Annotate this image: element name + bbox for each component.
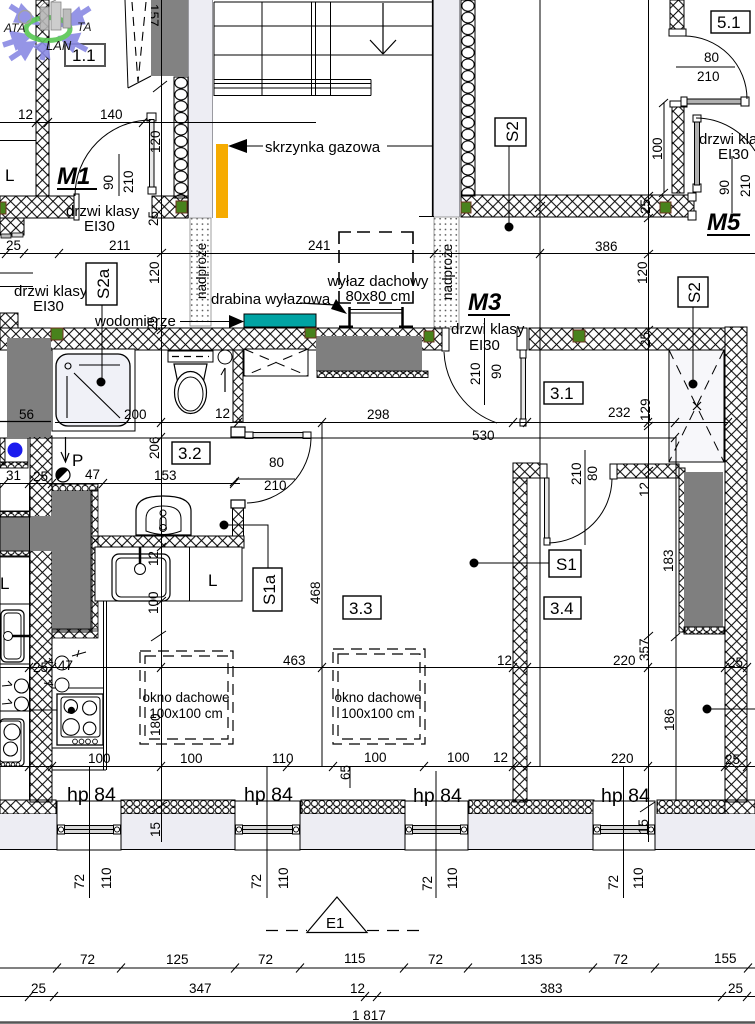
svg-text:135: 135	[520, 952, 543, 967]
svg-text:100x100 cm: 100x100 cm	[341, 706, 415, 721]
svg-text:L: L	[208, 571, 217, 590]
svg-text:206: 206	[147, 436, 162, 459]
svg-text:241: 241	[308, 238, 331, 253]
svg-text:12: 12	[493, 750, 508, 765]
svg-text:211: 211	[109, 238, 131, 253]
svg-text:3.1: 3.1	[550, 384, 574, 403]
svg-text:110: 110	[272, 751, 294, 766]
svg-text:155: 155	[714, 951, 737, 966]
svg-text:183: 183	[661, 549, 676, 572]
svg-text:210: 210	[468, 362, 483, 385]
svg-text:25: 25	[638, 199, 653, 214]
svg-text:125: 125	[166, 952, 189, 967]
svg-text:5.1: 5.1	[717, 13, 741, 32]
svg-text:47: 47	[58, 658, 73, 673]
svg-text:ATA: ATA	[3, 21, 26, 35]
svg-text:100: 100	[180, 751, 203, 766]
svg-text:25: 25	[728, 981, 743, 996]
svg-text:347: 347	[189, 981, 212, 996]
svg-text:220: 220	[613, 653, 636, 668]
svg-text:okno dachowe: okno dachowe	[334, 690, 421, 705]
svg-text:72: 72	[613, 952, 628, 967]
svg-text:25: 25	[146, 211, 161, 226]
svg-text:72: 72	[80, 952, 95, 967]
svg-text:M5: M5	[707, 209, 741, 236]
svg-text:1 817: 1 817	[352, 1008, 386, 1023]
svg-text:M3: M3	[468, 289, 502, 316]
svg-text:72: 72	[420, 876, 435, 891]
svg-text:100: 100	[88, 751, 111, 766]
svg-text:100: 100	[650, 137, 665, 160]
svg-text:25: 25	[145, 316, 160, 331]
svg-text:72: 72	[606, 875, 621, 890]
svg-text:80: 80	[704, 50, 719, 65]
svg-text:100: 100	[146, 591, 161, 614]
svg-text:3.3: 3.3	[349, 599, 373, 618]
svg-text:12: 12	[637, 482, 652, 497]
svg-text:65: 65	[338, 765, 353, 780]
svg-text:12: 12	[215, 406, 230, 421]
svg-text:120: 120	[147, 261, 162, 284]
svg-text:530: 530	[472, 428, 495, 443]
svg-text:drzwi klasy: drzwi klasy	[451, 321, 525, 338]
svg-text:140: 140	[100, 107, 123, 122]
svg-text:153: 153	[154, 468, 177, 483]
svg-text:nadproże: nadproże	[194, 243, 209, 299]
svg-text:80: 80	[269, 455, 284, 470]
svg-text:M1: M1	[57, 163, 90, 190]
svg-text:100: 100	[447, 750, 470, 765]
svg-text:hp 84: hp 84	[413, 785, 462, 807]
svg-text:72: 72	[72, 874, 87, 889]
svg-text:210: 210	[697, 69, 720, 84]
svg-text:120: 120	[635, 261, 650, 284]
svg-text:S2: S2	[503, 121, 522, 142]
svg-text:25: 25	[31, 981, 46, 996]
svg-text:72: 72	[428, 952, 443, 967]
svg-text:210: 210	[264, 478, 287, 493]
svg-text:200: 200	[124, 407, 147, 422]
svg-text:EI30: EI30	[469, 337, 500, 354]
svg-text:hp 84: hp 84	[67, 784, 116, 806]
svg-text:skrzynka gazowa: skrzynka gazowa	[265, 139, 381, 156]
svg-text:EI30: EI30	[718, 146, 749, 163]
svg-text:12: 12	[497, 653, 512, 668]
svg-text:S1: S1	[556, 555, 577, 574]
svg-text:186: 186	[662, 708, 677, 731]
svg-text:357: 357	[637, 638, 652, 661]
svg-text:E1: E1	[326, 915, 344, 932]
svg-text:386: 386	[595, 239, 618, 254]
svg-text:47: 47	[85, 467, 100, 482]
svg-text:80: 80	[585, 466, 600, 481]
svg-text:298: 298	[367, 407, 390, 422]
svg-text:drabina wyłazowa: drabina wyłazowa	[211, 291, 331, 308]
svg-text:LAN: LAN	[46, 38, 72, 53]
svg-text:hp 84: hp 84	[244, 784, 293, 806]
svg-text:3.2: 3.2	[178, 444, 202, 463]
svg-text:S2: S2	[685, 282, 704, 303]
svg-text:72: 72	[249, 874, 264, 889]
svg-text:25: 25	[725, 752, 740, 767]
svg-text:P: P	[72, 451, 83, 470]
svg-text:220: 220	[611, 751, 634, 766]
svg-text:wodomierze: wodomierze	[94, 313, 176, 330]
svg-text:210: 210	[121, 170, 136, 193]
svg-text:180: 180	[148, 713, 163, 736]
svg-text:120: 120	[148, 130, 163, 153]
svg-text:210: 210	[569, 462, 584, 485]
svg-text:90: 90	[489, 364, 504, 379]
svg-text:72: 72	[258, 952, 273, 967]
svg-text:25: 25	[638, 332, 653, 347]
svg-text:100: 100	[364, 750, 387, 765]
svg-text:468: 468	[308, 581, 323, 604]
svg-text:25: 25	[33, 660, 48, 675]
svg-text:115: 115	[344, 951, 366, 966]
svg-text:25: 25	[33, 469, 48, 484]
svg-text:L: L	[0, 574, 9, 593]
svg-text:EI30: EI30	[33, 298, 64, 315]
svg-text:80x80 cm: 80x80 cm	[345, 288, 410, 305]
svg-text:110: 110	[99, 867, 114, 889]
svg-text:nadproże: nadproże	[440, 244, 455, 300]
svg-text:S2a: S2a	[94, 268, 113, 299]
svg-text:S1a: S1a	[260, 574, 279, 605]
svg-text:232: 232	[608, 405, 631, 420]
svg-text:110: 110	[445, 867, 460, 889]
svg-text:31: 31	[6, 468, 21, 483]
svg-text:90: 90	[717, 180, 732, 195]
svg-text:okno dachowe: okno dachowe	[142, 690, 229, 705]
svg-text:129: 129	[638, 398, 653, 421]
svg-text:463: 463	[283, 653, 306, 668]
svg-text:210: 210	[738, 174, 753, 197]
svg-text:15: 15	[148, 822, 163, 837]
svg-text:110: 110	[276, 867, 291, 889]
svg-text:90: 90	[101, 175, 116, 190]
svg-text:L: L	[5, 166, 14, 185]
svg-text:25: 25	[6, 238, 21, 253]
svg-text:110: 110	[631, 867, 646, 889]
svg-text:TA: TA	[77, 20, 91, 34]
svg-text:hp 84: hp 84	[601, 785, 650, 807]
svg-text:25: 25	[728, 655, 743, 670]
svg-text:12: 12	[146, 551, 161, 566]
svg-text:EI30: EI30	[84, 218, 115, 235]
svg-text:383: 383	[540, 981, 563, 996]
svg-text:12: 12	[18, 107, 33, 122]
svg-text:12: 12	[350, 981, 365, 996]
svg-text:56: 56	[19, 407, 34, 422]
svg-text:3.4: 3.4	[550, 599, 574, 618]
